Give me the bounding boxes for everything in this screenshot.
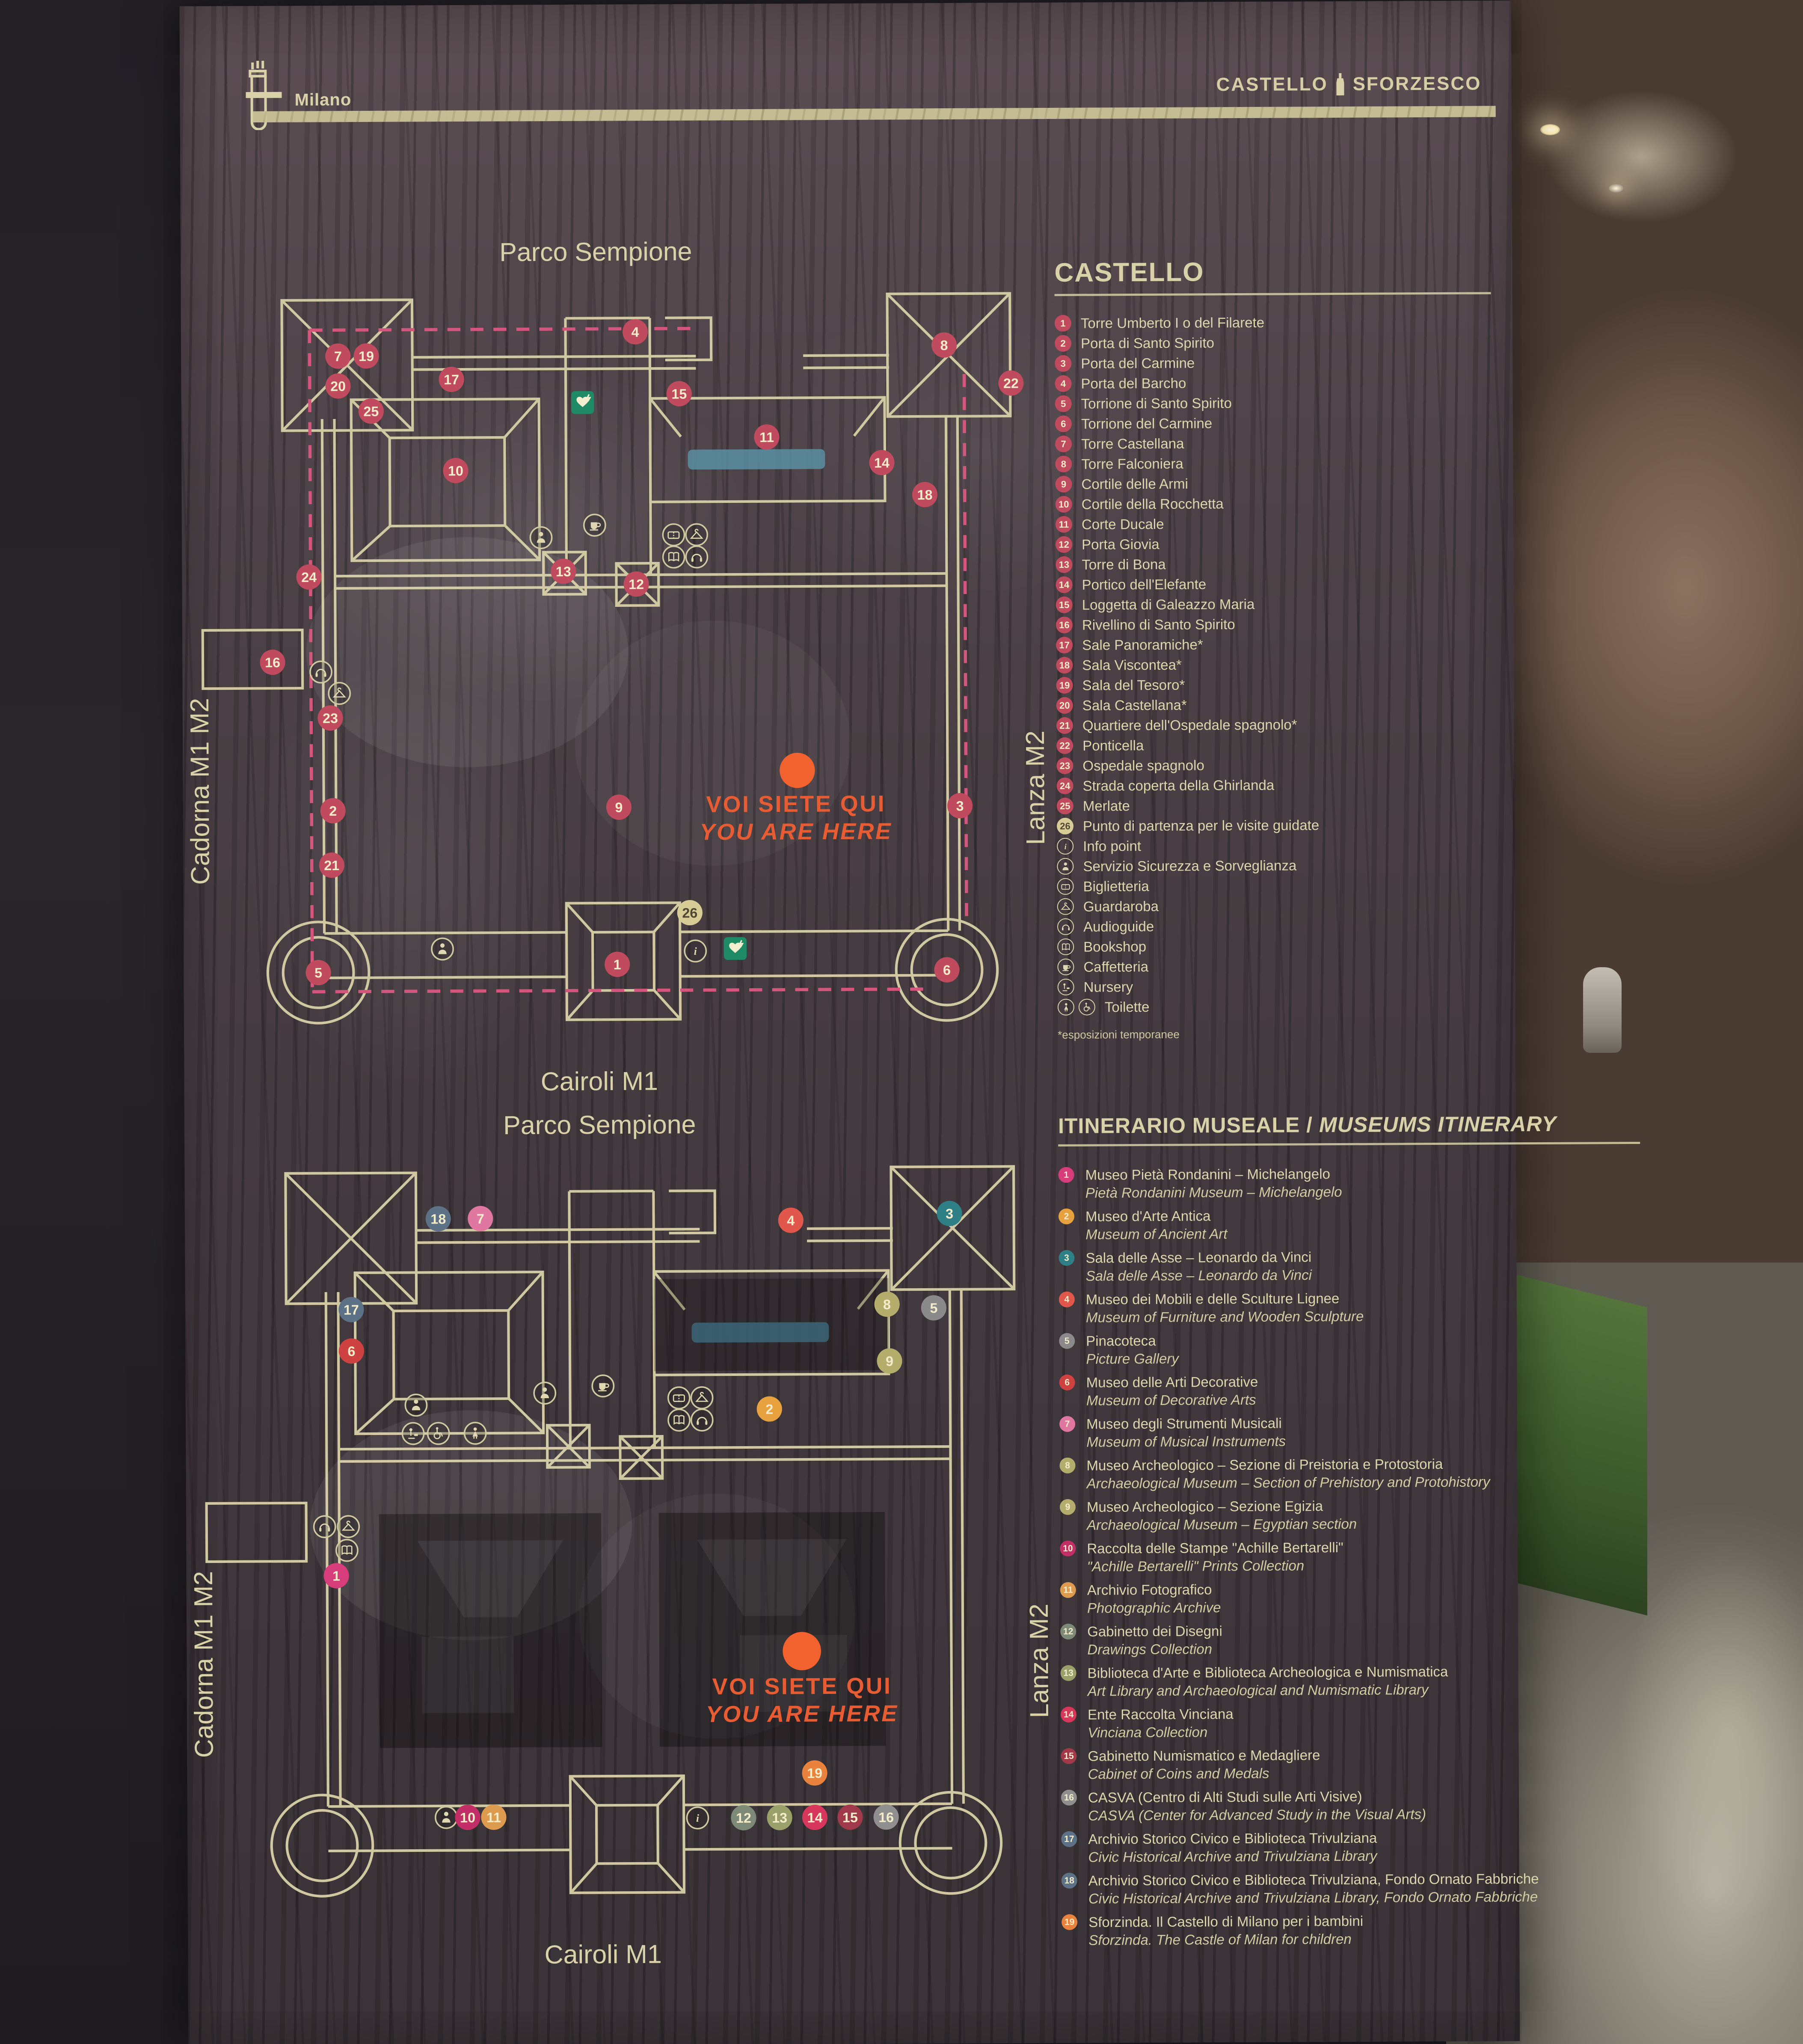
legend-number-badge: 6 — [1055, 416, 1072, 432]
legend-number-badge: 2 — [1055, 335, 1071, 352]
defib-icon — [571, 391, 594, 414]
legend-number-badge: 10 — [1056, 496, 1072, 513]
svg-text:13: 13 — [556, 564, 571, 579]
you-are-here-it: VOI SIETE QUI — [706, 791, 886, 817]
map-marker-3: 3 — [947, 793, 973, 818]
info-icon — [685, 940, 706, 962]
museum-label-it: Ente Raccolta Vinciana — [1088, 1705, 1234, 1723]
museum-label-it: Sala delle Asse – Leonardo da Vinci — [1085, 1248, 1312, 1267]
map-marker-6: 6 — [339, 1338, 364, 1364]
label-cadorna: Cadorna M1 M2 — [189, 1571, 219, 1758]
map-marker-16: 16 — [873, 1804, 899, 1830]
svg-text:2: 2 — [329, 803, 337, 819]
museum-item: 10Raccolta delle Stampe "Achille Bertare… — [1060, 1537, 1642, 1576]
legend-number-badge: 11 — [1056, 516, 1072, 533]
map-marker-2: 2 — [320, 798, 346, 823]
you-are-here-dot — [780, 753, 815, 788]
legend-label: Ponticella — [1082, 737, 1144, 754]
map-marker-14: 14 — [802, 1805, 827, 1830]
museum-label-it: Biblioteca d'Arte e Biblioteca Archeolog… — [1088, 1663, 1448, 1682]
nursery-icon — [402, 1423, 424, 1444]
map-marker-18: 18 — [912, 482, 937, 507]
headphones-icon — [686, 546, 707, 567]
person-icon — [530, 527, 552, 548]
sign-panel: Milano CASTELLO SFORZESCO i — [180, 0, 1520, 2044]
legend-label: Torrione di Santo Spirito — [1081, 395, 1232, 412]
legend-row: 21Quartiere dell'Ospedale spagnolo* — [1056, 713, 1493, 735]
legend-label: Merlate — [1083, 798, 1130, 814]
museum-label-it: Archivio Fotografico — [1087, 1581, 1221, 1599]
museum-item: 3Sala delle Asse – Leonardo da VinciSala… — [1059, 1247, 1640, 1285]
legend-row: 15Loggetta di Galeazzo Maria — [1056, 593, 1492, 615]
svg-text:7: 7 — [334, 349, 342, 364]
hanger-icon — [329, 683, 350, 704]
museum-label-en: Drawings Collection — [1087, 1640, 1222, 1658]
svg-text:22: 22 — [1003, 376, 1019, 391]
museum-labels: Museo Archeologico – Sezione di Preistor… — [1086, 1455, 1490, 1492]
legend-number-badge: 18 — [1056, 657, 1073, 674]
map-marker-16: 16 — [260, 650, 285, 675]
legend-label: Punto di partenza per le visite guidate — [1083, 817, 1319, 834]
svg-text:10: 10 — [448, 463, 463, 478]
svg-text:21: 21 — [324, 858, 339, 873]
sign-title: CASTELLO SFORZESCO — [1216, 73, 1481, 96]
museum-labels: Gabinetto Numismatico e MedagliereCabine… — [1088, 1746, 1320, 1783]
svg-text:17: 17 — [444, 372, 459, 387]
museum-labels: Museo degli Strumenti MusicaliMuseum of … — [1086, 1414, 1286, 1451]
svg-text:12: 12 — [629, 576, 644, 592]
person-icon — [534, 1382, 555, 1404]
castle-map-top: 7192025171041511141882213122416232219326… — [178, 209, 1063, 1110]
museum-label-en: Picture Gallery — [1086, 1350, 1179, 1368]
museum-label-it: Gabinetto Numismatico e Medagliere — [1088, 1746, 1320, 1765]
legend-label: Toilette — [1105, 998, 1150, 1015]
rule — [1055, 292, 1491, 296]
legend-row: 14Portico dell'Elefante — [1056, 573, 1492, 594]
svg-text:1: 1 — [614, 957, 621, 972]
svg-text:20: 20 — [330, 378, 346, 394]
museum-labels: Sala delle Asse – Leonardo da VinciSala … — [1085, 1248, 1312, 1285]
legend-number-badge: 20 — [1056, 697, 1073, 714]
legend-row: 18Sala Viscontea* — [1056, 653, 1492, 675]
map-marker-17: 17 — [338, 1297, 364, 1322]
legend-label: Ospedale spagnolo — [1082, 757, 1204, 774]
svg-text:9: 9 — [886, 1354, 893, 1369]
map-marker-13: 13 — [767, 1805, 792, 1830]
museum-item: 14Ente Raccolta VincianaVinciana Collect… — [1061, 1703, 1643, 1742]
legend-label: Biglietteria — [1083, 878, 1149, 894]
info-icon — [687, 1807, 708, 1829]
museum-labels: Biblioteca d'Arte e Biblioteca Archeolog… — [1088, 1663, 1448, 1700]
map-marker-18: 18 — [426, 1206, 451, 1231]
legend-label: Torre Falconiera — [1081, 455, 1183, 472]
legend-number-badge: 17 — [1056, 637, 1073, 654]
person-icon — [432, 938, 453, 960]
museum-label-it: Museo degli Strumenti Musicali — [1086, 1414, 1286, 1433]
museum-item: 7Museo degli Strumenti MusicaliMuseum of… — [1059, 1413, 1641, 1451]
map-marker-8: 8 — [874, 1292, 899, 1317]
castello-legend: CASTELLO 1Torre Umberto I o del Filarete… — [1054, 255, 1494, 1041]
legend-number-badge: 7 — [1055, 436, 1072, 452]
museum-number-badge: 7 — [1059, 1416, 1075, 1432]
museum-label-it: Pinacoteca — [1086, 1332, 1179, 1350]
museum-item: 5PinacotecaPicture Gallery — [1059, 1330, 1641, 1368]
map-marker-26: 26 — [677, 900, 703, 925]
legend-service-row: Servizio Sicurezza e Sorveglianza — [1057, 854, 1493, 876]
legend-service-row: Biglietteria — [1057, 874, 1494, 896]
legend-label: Caffetteria — [1083, 958, 1148, 975]
legend-label: Torrione del Carmine — [1081, 415, 1212, 432]
label-lanza: Lanza M2 — [1024, 1604, 1054, 1718]
map-marker-25: 25 — [359, 398, 384, 424]
hanger-icon — [338, 1516, 359, 1537]
label-parco-sempione: Parco Sempione — [499, 237, 692, 267]
svg-text:1: 1 — [332, 1568, 340, 1584]
headphones-icon — [1057, 918, 1074, 935]
svg-text:4: 4 — [787, 1213, 795, 1228]
map-marker-11: 11 — [754, 424, 779, 449]
museum-label-en: Sforzinda. The Castle of Milan for child… — [1088, 1930, 1363, 1949]
museum-labels: Archivio Storico Civico e Biblioteca Tri… — [1088, 1870, 1539, 1908]
legend-number-badge: 21 — [1056, 717, 1073, 734]
book-icon — [668, 1409, 690, 1431]
svg-text:23: 23 — [323, 710, 338, 726]
map-marker-12: 12 — [623, 571, 649, 597]
legend-label: Sale Panoramiche* — [1082, 636, 1203, 653]
svg-text:16: 16 — [265, 655, 280, 670]
legend-row: 8Torre Falconiera — [1055, 452, 1492, 474]
legend-row: 1Torre Umberto I o del Filarete — [1055, 311, 1491, 333]
museum-label-it: Sforzinda. Il Castello di Milano per i b… — [1088, 1912, 1363, 1931]
museum-label-en: Museum of Furniture and Wooden Sculpture — [1086, 1307, 1364, 1327]
legend-number-badge: 5 — [1055, 395, 1072, 412]
museum-number-badge: 13 — [1061, 1665, 1076, 1681]
svg-text:15: 15 — [671, 386, 687, 401]
legend-label: Torre Castellana — [1081, 435, 1184, 452]
svg-text:18: 18 — [917, 487, 933, 502]
you-are-here-en: YOU ARE HERE — [700, 818, 892, 845]
museum-item: 16CASVA (Centro di Alti Studi sulle Arti… — [1061, 1786, 1643, 1825]
legend-number-badge: 14 — [1056, 576, 1072, 593]
museum-item: 15Gabinetto Numismatico e MedagliereCabi… — [1061, 1745, 1643, 1783]
museum-item: 12Gabinetto dei DisegniDrawings Collecti… — [1060, 1620, 1642, 1659]
castello-legend-list: 1Torre Umberto I o del Filarete2Porta di… — [1055, 311, 1494, 1017]
ticket-icon — [663, 524, 684, 545]
map-marker-9: 9 — [606, 794, 632, 820]
museum-number-badge: 2 — [1059, 1209, 1074, 1224]
map-marker-6: 6 — [934, 957, 959, 982]
legend-row: 16Rivellino di Santo Spirito — [1056, 613, 1492, 635]
svg-text:12: 12 — [736, 1810, 751, 1826]
ticket-icon — [1057, 878, 1074, 895]
legend-number-badge: 13 — [1056, 556, 1072, 573]
map-marker-7: 7 — [468, 1206, 493, 1231]
svg-text:11: 11 — [759, 430, 774, 445]
museum-label-it: Museo Pietà Rondanini – Michelangelo — [1085, 1165, 1342, 1184]
person-icon — [436, 1807, 457, 1828]
wall-floodlight — [1540, 124, 1560, 135]
museum-label-en: Sala delle Asse – Leonardo da Vinci — [1085, 1266, 1312, 1285]
map-marker-10: 10 — [455, 1805, 480, 1830]
museum-number-badge: 3 — [1059, 1250, 1074, 1266]
map-marker-19: 19 — [353, 343, 379, 368]
map-marker-5: 5 — [305, 960, 331, 985]
legend-service-row: Bookshop — [1057, 935, 1494, 957]
museum-label-it: Raccolta delle Stampe "Achille Bertarell… — [1087, 1539, 1343, 1558]
legend-number-badge: 23 — [1056, 758, 1073, 774]
legend-number-badge: 15 — [1056, 597, 1073, 613]
legend-row: 12Porta Giovia — [1056, 532, 1492, 554]
legend-row: 26Punto di partenza per le visite guidat… — [1057, 814, 1493, 836]
museum-number-badge: 17 — [1061, 1831, 1077, 1847]
legend-label: Audioguide — [1083, 918, 1154, 935]
museum-number-badge: 9 — [1060, 1499, 1076, 1515]
legend-number-badge: 26 — [1057, 818, 1073, 835]
svg-text:14: 14 — [874, 455, 890, 470]
label-lanza: Lanza M2 — [1020, 731, 1050, 845]
milano-logo-text: Milano — [294, 90, 351, 110]
museum-labels: Raccolta delle Stampe "Achille Bertarell… — [1087, 1539, 1343, 1576]
museum-label-it: Archivio Storico Civico e Biblioteca Tri… — [1088, 1870, 1539, 1890]
legend-label: Rivellino di Santo Spirito — [1082, 616, 1235, 633]
map-marker-19: 19 — [802, 1760, 827, 1786]
you-are-here-dot — [783, 1632, 821, 1670]
map-marker-14: 14 — [869, 450, 894, 475]
museum-label-it: Museo Archeologico – Sezione Egizia — [1087, 1497, 1357, 1516]
legend-label: Loggetta di Galeazzo Maria — [1082, 596, 1255, 613]
legend-label: Sala Castellana* — [1082, 697, 1187, 713]
museum-labels: CASVA (Centro di Alti Studi sulle Arti V… — [1088, 1787, 1426, 1824]
museum-labels: Museo Archeologico – Sezione EgiziaArcha… — [1087, 1497, 1357, 1534]
museum-labels: PinacotecaPicture Gallery — [1086, 1332, 1179, 1368]
museum-item: 19Sforzinda. Il Castello di Milano per i… — [1062, 1911, 1643, 1949]
museum-number-badge: 10 — [1060, 1541, 1076, 1557]
legend-row: 6Torrione del Carmine — [1055, 412, 1492, 434]
museum-number-badge: 15 — [1061, 1748, 1076, 1764]
legend-number-badge: 1 — [1055, 315, 1071, 332]
book-icon — [1057, 939, 1074, 955]
museum-label-en: Museum of Musical Instruments — [1086, 1432, 1286, 1451]
map-marker-20: 20 — [325, 373, 350, 398]
photo-of-castle-map-sign: Milano CASTELLO SFORZESCO i — [0, 0, 1803, 2044]
legend-row: 22Ponticella — [1056, 734, 1493, 755]
museum-label-en: "Achille Bertarelli" Prints Collection — [1087, 1557, 1343, 1576]
map-marker-7: 7 — [325, 343, 350, 368]
svg-text:2: 2 — [765, 1402, 773, 1417]
museum-label-en: Photographic Archive — [1087, 1598, 1221, 1617]
nursery-icon — [1058, 979, 1074, 995]
museum-number-badge: 19 — [1062, 1914, 1077, 1930]
map-marker-15: 15 — [837, 1804, 863, 1830]
museum-label-en: Archaeological Museum – Egyptian section — [1087, 1515, 1357, 1534]
legend-service-row: Audioguide — [1057, 915, 1494, 936]
museum-number-badge: 14 — [1061, 1707, 1076, 1723]
svg-text:5: 5 — [930, 1300, 937, 1316]
museum-number-badge: 8 — [1059, 1458, 1075, 1474]
map-marker-10: 10 — [443, 458, 468, 483]
museum-label-en: Archaeological Museum – Section of Prehi… — [1087, 1473, 1490, 1492]
svg-text:3: 3 — [946, 1206, 953, 1221]
museum-labels: Museo dei Mobili e delle Sculture Lignee… — [1086, 1289, 1364, 1327]
legend-label: Servizio Sicurezza e Sorveglianza — [1083, 857, 1296, 874]
cup-icon — [592, 1375, 614, 1396]
museum-label-en: Vinciana Collection — [1088, 1723, 1234, 1741]
legend-row: 4Porta del Barcho — [1055, 371, 1491, 393]
map-marker-23: 23 — [317, 705, 343, 731]
sign-title-right: SFORZESCO — [1353, 73, 1482, 95]
wall-floodlight — [1609, 184, 1623, 193]
legend-service-row: Caffetteria — [1057, 955, 1494, 977]
museum-label-en: Cabinet of Coins and Medals — [1088, 1764, 1320, 1783]
map-marker-4: 4 — [778, 1208, 804, 1233]
legend-number-badge: 16 — [1056, 617, 1073, 633]
museum-label-en: Art Library and Archaeological and Numis… — [1088, 1681, 1448, 1700]
museum-item: 6Museo delle Arti DecorativeMuseum of De… — [1059, 1371, 1641, 1410]
legend-row: 17Sale Panoramiche* — [1056, 633, 1492, 655]
legend-row: 2Porta di Santo Spirito — [1055, 331, 1491, 353]
museum-label-en: Civic Historical Archive and Trivulziana… — [1088, 1847, 1377, 1866]
museum-label-en: Pietà Rondanini Museum – Michelangelo — [1085, 1183, 1342, 1202]
svg-text:15: 15 — [842, 1810, 858, 1825]
museum-number-badge: 11 — [1060, 1582, 1076, 1598]
svg-text:13: 13 — [772, 1810, 787, 1825]
legend-number-badge: 22 — [1056, 737, 1073, 754]
museum-labels: Archivio Storico Civico e Biblioteca Tri… — [1088, 1829, 1377, 1866]
svg-text:4: 4 — [632, 324, 639, 340]
legend-row: 10Cortile della Rocchetta — [1056, 492, 1492, 514]
museum-label-it: Museo d'Arte Antica — [1085, 1207, 1228, 1225]
museum-label-en: CASVA (Center for Advanced Study in the … — [1088, 1805, 1426, 1824]
museum-item: 2Museo d'Arte AnticaMuseum of Ancient Ar… — [1059, 1205, 1640, 1244]
label-parco-sempione: Parco Sempione — [503, 1110, 696, 1140]
svg-text:19: 19 — [807, 1765, 822, 1781]
museums-itinerary: ITINERARIO MUSEALE / MUSEUMS ITINERARY 1… — [1058, 1111, 1644, 1955]
castle-brick-wall — [1509, 0, 1803, 1305]
svg-text:17: 17 — [344, 1302, 359, 1318]
info-icon — [1057, 838, 1073, 855]
legend-row: 5Torrione di Santo Spirito — [1055, 392, 1492, 413]
svg-text:14: 14 — [807, 1810, 823, 1825]
legend-row: 19Sala del Tesoro* — [1056, 673, 1492, 695]
svg-text:8: 8 — [940, 338, 948, 353]
map-marker-3: 3 — [937, 1201, 962, 1226]
museum-labels: Gabinetto dei DisegniDrawings Collection — [1087, 1622, 1222, 1658]
museum-label-it: CASVA (Centro di Alti Studi sulle Arti V… — [1088, 1787, 1426, 1806]
you-are-here-it: VOI SIETE QUI — [712, 1673, 892, 1699]
map-marker-15: 15 — [667, 381, 692, 406]
museums-title: ITINERARIO MUSEALE / MUSEUMS ITINERARY — [1058, 1111, 1640, 1138]
headphones-icon — [691, 1409, 713, 1431]
map-marker-5: 5 — [921, 1295, 946, 1320]
book-icon — [663, 546, 684, 567]
museum-number-badge: 12 — [1060, 1624, 1076, 1640]
museum-item: 11Archivio FotograficoPhotographic Archi… — [1060, 1579, 1642, 1617]
legend-label: Quartiere dell'Ospedale spagnolo* — [1082, 716, 1297, 734]
museum-label-en: Civic Historical Archive and Trivulziana… — [1088, 1888, 1539, 1908]
label-cadorna: Cadorna M1 M2 — [185, 698, 215, 885]
museum-label-it: Museo Archeologico – Sezione di Preistor… — [1086, 1455, 1490, 1474]
svg-text:6: 6 — [943, 963, 951, 978]
museum-label-it: Museo delle Arti Decorative — [1086, 1373, 1258, 1392]
svg-text:25: 25 — [363, 404, 379, 419]
hanger-icon — [686, 524, 707, 545]
legend-row: 20Sala Castellana* — [1056, 693, 1493, 715]
map-marker-2: 2 — [757, 1396, 782, 1422]
castello-footnote: *esposizioni temporanee — [1058, 1026, 1494, 1041]
museum-item: 9Museo Archeologico – Sezione EgiziaArch… — [1060, 1496, 1642, 1534]
map-marker-13: 13 — [551, 559, 576, 584]
map-marker-11: 11 — [481, 1805, 506, 1830]
defib-icon — [724, 937, 747, 960]
legend-label: Porta del Carmine — [1081, 355, 1195, 371]
legend-row: 13Torre di Bona — [1056, 553, 1492, 574]
museum-labels: Sforzinda. Il Castello di Milano per i b… — [1088, 1912, 1363, 1949]
svg-text:6: 6 — [347, 1343, 355, 1359]
statue — [1583, 967, 1622, 1053]
map-marker-22: 22 — [998, 370, 1023, 395]
svg-text:10: 10 — [460, 1810, 475, 1825]
museum-number-badge: 16 — [1061, 1790, 1077, 1806]
legend-service-row: Info point — [1057, 834, 1493, 856]
museum-labels: Museo d'Arte AnticaMuseum of Ancient Art — [1085, 1207, 1228, 1243]
museum-item: 4Museo dei Mobili e delle Sculture Ligne… — [1059, 1288, 1641, 1327]
cup-icon — [1057, 959, 1074, 975]
book-icon — [336, 1539, 358, 1561]
legend-number-badge: 9 — [1055, 476, 1072, 493]
museum-label-it: Archivio Storico Civico e Biblioteca Tri… — [1088, 1829, 1377, 1848]
museum-labels: Museo Pietà Rondanini – MichelangeloPiet… — [1085, 1165, 1342, 1202]
museum-number-badge: 6 — [1059, 1375, 1075, 1390]
legend-number-badge: 19 — [1056, 677, 1073, 694]
map-marker-21: 21 — [319, 853, 344, 878]
svg-text:19: 19 — [359, 348, 374, 364]
legend-label: Porta di Santo Spirito — [1081, 335, 1214, 351]
legend-number-badge: 3 — [1055, 355, 1071, 372]
legend-label: Porta del Barcho — [1081, 375, 1186, 392]
legend-number-badge: 4 — [1055, 375, 1071, 392]
wheelchair-icon — [1079, 998, 1095, 1015]
museum-item: 17Archivio Storico Civico e Biblioteca T… — [1061, 1828, 1643, 1866]
cup-icon — [584, 514, 605, 536]
museum-item: 18Archivio Storico Civico e Biblioteca T… — [1062, 1869, 1643, 1908]
museums-title-en: MUSEUMS ITINERARY — [1319, 1112, 1557, 1137]
headphones-icon — [310, 661, 332, 683]
svg-text:5: 5 — [314, 965, 322, 980]
svg-text:11: 11 — [486, 1810, 501, 1825]
museum-label-it: Museo dei Mobili e delle Sculture Lignee — [1086, 1289, 1364, 1309]
museum-number-badge: 4 — [1059, 1292, 1075, 1307]
you-are-here-en: YOU ARE HERE — [706, 1701, 899, 1727]
museums-title-it: ITINERARIO MUSEALE — [1058, 1113, 1300, 1138]
legend-label: Porta Giovia — [1082, 536, 1159, 553]
map-marker-9: 9 — [877, 1348, 902, 1373]
svg-text:8: 8 — [883, 1297, 891, 1312]
svg-text:16: 16 — [878, 1809, 894, 1825]
legend-number-badge: 12 — [1056, 536, 1072, 553]
person-icon — [405, 1394, 427, 1416]
map-marker-1: 1 — [605, 952, 630, 977]
castle-map-bottom: 18743176859211011191213141516 VOI SIETE … — [182, 1082, 1067, 1983]
map-marker-4: 4 — [623, 319, 648, 345]
legend-label: Guardaroba — [1083, 898, 1159, 915]
legend-number-badge: 24 — [1056, 778, 1073, 794]
museum-label-en: Museum of Ancient Art — [1085, 1225, 1228, 1243]
legend-label: Nursery — [1084, 979, 1133, 995]
svg-text:9: 9 — [615, 800, 623, 815]
museum-labels: Archivio FotograficoPhotographic Archive — [1087, 1581, 1221, 1617]
museum-number-badge: 1 — [1058, 1167, 1074, 1183]
legend-row: 24Strada coperta della Ghirlanda — [1056, 774, 1493, 796]
